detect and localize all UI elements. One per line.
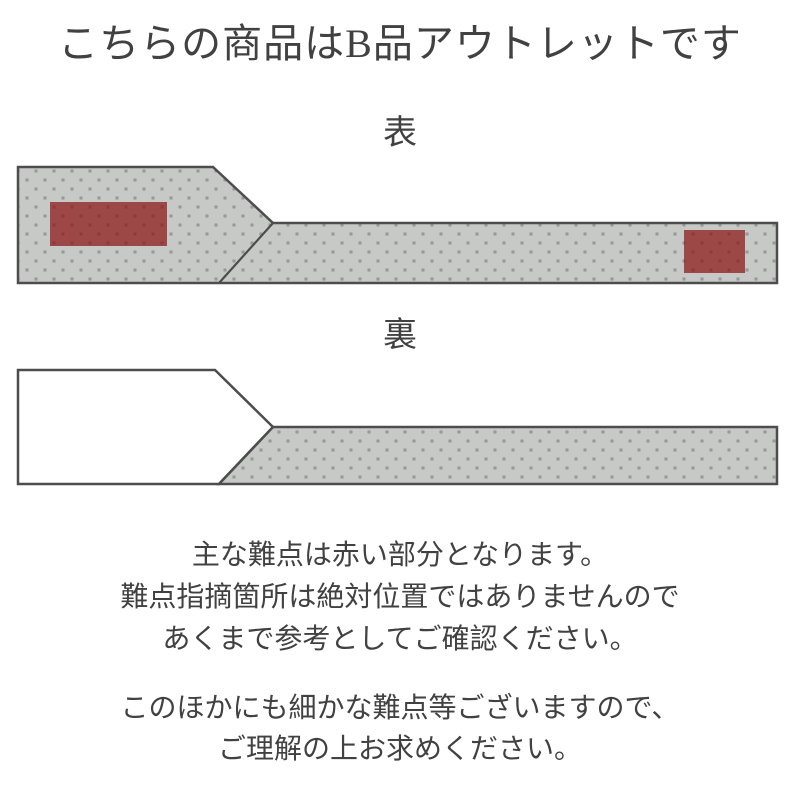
tie-back-diagram xyxy=(18,370,777,484)
outlet-notice-page: こちらの商品はB品アウトレットです 表 裏 xyxy=(0,0,800,800)
defect-marker-front-left xyxy=(50,202,167,246)
note-line: 主な難点は赤い部分となります。 xyxy=(0,535,800,577)
note-line: 難点指摘箇所は絶対位置ではありませんので xyxy=(0,577,800,619)
note-line: ご理解の上お求めください。 xyxy=(0,729,800,770)
main-defect-note: 主な難点は赤い部分となります。 難点指摘箇所は絶対位置ではありませんので あくま… xyxy=(0,535,800,661)
defect-marker-front-right xyxy=(684,230,745,273)
tie-back-band-shape xyxy=(219,427,777,484)
tie-front-diagram xyxy=(18,167,777,283)
note-line: あくまで参考としてご確認ください。 xyxy=(0,619,800,661)
note-line: このほかにも細かな難点等ございますので、 xyxy=(0,688,800,729)
additional-defect-note: このほかにも細かな難点等ございますので、 ご理解の上お求めください。 xyxy=(0,688,800,770)
tie-diagram-svg xyxy=(0,0,800,800)
